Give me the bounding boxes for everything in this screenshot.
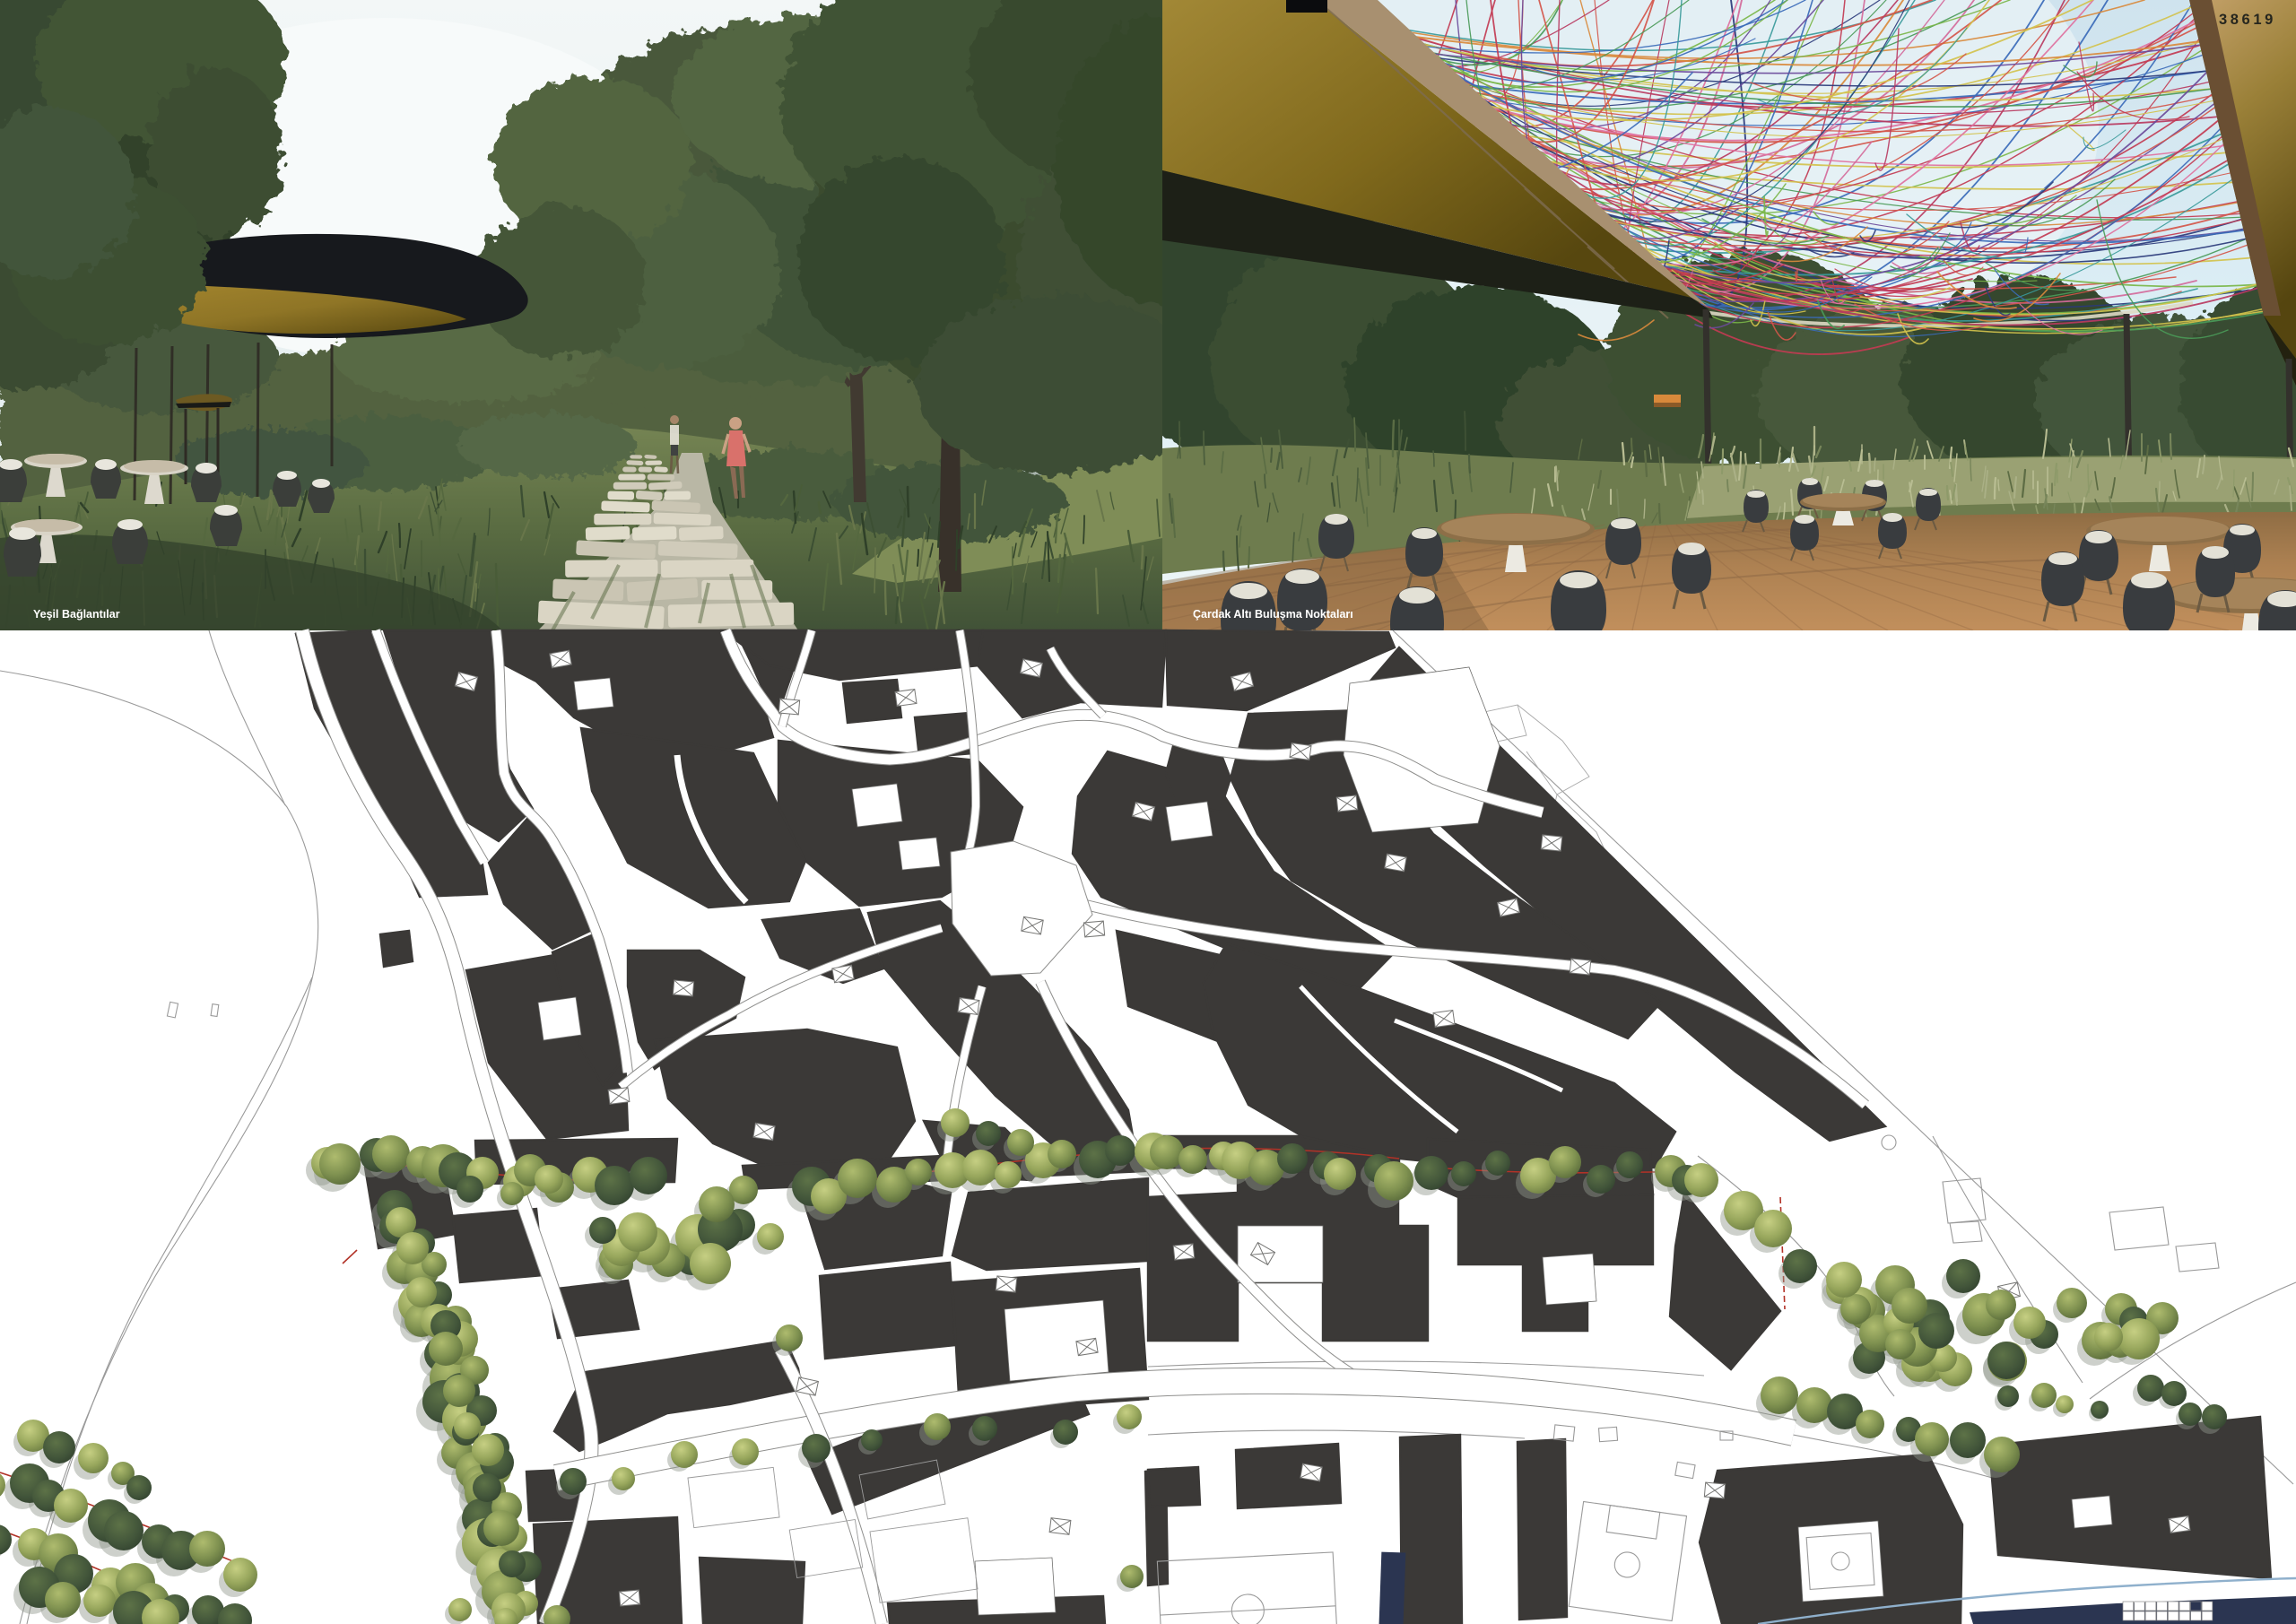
- svg-text:Yeşil Bağlantılar: Yeşil Bağlantılar: [33, 608, 120, 621]
- svg-text:38619: 38619: [2219, 12, 2276, 28]
- svg-text:Çardak Altı Buluşma Noktaları: Çardak Altı Buluşma Noktaları: [1193, 608, 1353, 621]
